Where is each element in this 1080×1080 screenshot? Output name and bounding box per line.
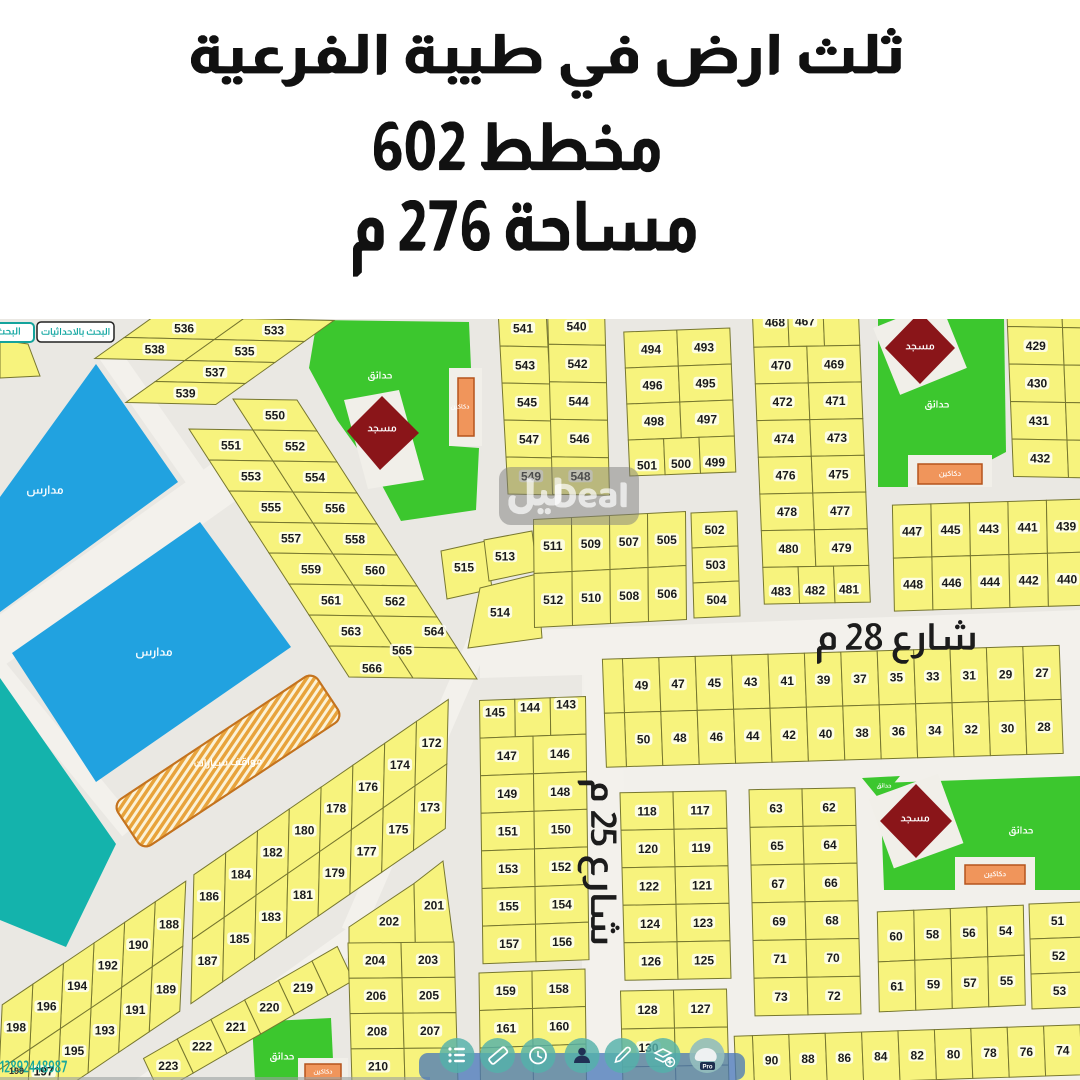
svg-text:493: 493 xyxy=(694,340,714,354)
svg-text:159: 159 xyxy=(496,984,516,998)
svg-text:63: 63 xyxy=(769,801,783,815)
svg-text:61: 61 xyxy=(890,979,904,993)
svg-text:497: 497 xyxy=(697,412,717,426)
svg-text:144: 144 xyxy=(520,700,540,714)
svg-text:125: 125 xyxy=(694,953,714,967)
svg-text:50: 50 xyxy=(637,732,651,746)
svg-text:439: 439 xyxy=(1056,520,1076,534)
svg-text:191: 191 xyxy=(125,1003,145,1017)
svg-text:147: 147 xyxy=(497,749,517,763)
svg-text:565: 565 xyxy=(392,643,412,657)
svg-text:54: 54 xyxy=(999,924,1013,938)
svg-text:558: 558 xyxy=(345,532,365,546)
svg-text:189: 189 xyxy=(156,982,176,996)
svg-text:192: 192 xyxy=(98,959,118,973)
svg-text:513: 513 xyxy=(495,549,515,563)
svg-text:76: 76 xyxy=(1020,1045,1034,1059)
svg-text:186: 186 xyxy=(199,889,219,903)
svg-text:496: 496 xyxy=(642,378,662,392)
svg-text:483: 483 xyxy=(771,584,791,598)
svg-text:540: 540 xyxy=(566,319,586,333)
svg-text:148: 148 xyxy=(550,785,570,799)
svg-text:220: 220 xyxy=(259,1001,279,1015)
svg-text:38: 38 xyxy=(855,726,869,740)
svg-text:36: 36 xyxy=(892,725,906,739)
svg-text:537: 537 xyxy=(205,365,225,379)
svg-text:179: 179 xyxy=(325,866,345,880)
svg-text:29: 29 xyxy=(999,667,1013,681)
svg-text:155: 155 xyxy=(499,900,519,914)
svg-text:510: 510 xyxy=(581,591,601,605)
svg-text:501: 501 xyxy=(637,458,657,472)
svg-text:57: 57 xyxy=(963,976,977,990)
svg-text:67: 67 xyxy=(771,877,785,891)
svg-text:444: 444 xyxy=(980,575,1000,589)
svg-text:219: 219 xyxy=(293,981,313,995)
svg-text:440: 440 xyxy=(1057,573,1077,587)
svg-text:58: 58 xyxy=(926,928,940,942)
svg-text:30: 30 xyxy=(1001,721,1015,735)
svg-text:207: 207 xyxy=(420,1024,440,1038)
svg-text:445: 445 xyxy=(941,523,961,537)
svg-text:194: 194 xyxy=(67,979,87,993)
svg-text:53: 53 xyxy=(1053,984,1067,998)
svg-text:481: 481 xyxy=(839,582,859,596)
svg-text:154: 154 xyxy=(552,898,572,912)
svg-text:56: 56 xyxy=(962,926,976,940)
svg-text:62: 62 xyxy=(822,800,836,814)
svg-text:535: 535 xyxy=(235,344,255,358)
svg-text:181: 181 xyxy=(293,888,313,902)
svg-text:187: 187 xyxy=(198,954,218,968)
svg-text:221: 221 xyxy=(226,1020,246,1034)
svg-text:509: 509 xyxy=(581,537,601,551)
svg-text:157: 157 xyxy=(499,937,519,951)
svg-text:Pro: Pro xyxy=(702,1065,712,1071)
svg-text:52: 52 xyxy=(1052,949,1066,963)
svg-text:193: 193 xyxy=(95,1024,115,1038)
svg-text:566: 566 xyxy=(362,661,382,675)
svg-text:482: 482 xyxy=(805,583,825,597)
svg-text:554: 554 xyxy=(305,470,325,484)
svg-text:86: 86 xyxy=(838,1051,852,1065)
svg-text:502: 502 xyxy=(704,523,724,537)
svg-text:33: 33 xyxy=(926,670,940,684)
svg-text:88: 88 xyxy=(801,1052,815,1066)
svg-text:512: 512 xyxy=(543,593,563,607)
svg-text:560: 560 xyxy=(365,563,385,577)
svg-text:68: 68 xyxy=(825,914,839,928)
svg-text:539: 539 xyxy=(176,386,196,400)
svg-text:514: 514 xyxy=(490,605,510,619)
svg-text:552: 552 xyxy=(285,439,305,453)
svg-text:195: 195 xyxy=(64,1044,84,1058)
svg-text:39: 39 xyxy=(817,673,831,687)
svg-text:543: 543 xyxy=(515,358,535,372)
svg-text:507: 507 xyxy=(619,535,639,549)
svg-text:431: 431 xyxy=(1029,414,1049,428)
svg-text:198: 198 xyxy=(6,1020,26,1034)
svg-text:42: 42 xyxy=(783,728,797,742)
svg-text:40: 40 xyxy=(819,727,833,741)
svg-text:511: 511 xyxy=(543,539,563,553)
svg-text:480: 480 xyxy=(778,542,798,556)
svg-text:47: 47 xyxy=(671,677,685,691)
svg-text:152: 152 xyxy=(551,860,571,874)
svg-text:119: 119 xyxy=(691,841,711,855)
svg-text:46: 46 xyxy=(710,730,724,744)
svg-text:503: 503 xyxy=(705,558,725,572)
svg-text:561: 561 xyxy=(321,593,341,607)
svg-text:550: 550 xyxy=(265,408,285,422)
svg-text:547: 547 xyxy=(519,432,539,446)
svg-text:551: 551 xyxy=(221,438,241,452)
svg-text:188: 188 xyxy=(159,917,179,931)
svg-text:206: 206 xyxy=(366,989,386,1003)
svg-text:145: 145 xyxy=(485,705,505,719)
svg-text:500: 500 xyxy=(671,457,691,471)
svg-text:430: 430 xyxy=(1027,377,1047,391)
svg-text:146: 146 xyxy=(550,747,570,761)
svg-text:470: 470 xyxy=(771,358,791,372)
svg-text:505: 505 xyxy=(657,533,677,547)
svg-text:448: 448 xyxy=(903,577,923,591)
svg-text:222: 222 xyxy=(192,1040,212,1054)
svg-text:37: 37 xyxy=(853,672,867,686)
svg-text:477: 477 xyxy=(830,504,850,518)
svg-text:479: 479 xyxy=(831,541,851,555)
svg-text:123: 123 xyxy=(693,916,713,930)
svg-text:557: 557 xyxy=(281,531,301,545)
svg-text:555: 555 xyxy=(261,500,281,514)
svg-text:190: 190 xyxy=(128,938,148,952)
svg-text:202: 202 xyxy=(379,914,399,928)
svg-text:553: 553 xyxy=(241,469,261,483)
svg-text:182: 182 xyxy=(263,846,283,860)
svg-text:223: 223 xyxy=(158,1059,178,1073)
svg-text:174: 174 xyxy=(390,758,410,772)
svg-text:205: 205 xyxy=(419,989,439,1003)
svg-text:69: 69 xyxy=(772,915,786,929)
svg-text:90: 90 xyxy=(765,1053,779,1067)
svg-text:203: 203 xyxy=(418,953,438,967)
svg-text:126: 126 xyxy=(641,954,661,968)
svg-text:48: 48 xyxy=(673,731,687,745)
svg-text:149: 149 xyxy=(497,787,517,801)
svg-text:429: 429 xyxy=(1026,339,1046,353)
svg-text:60: 60 xyxy=(889,929,903,943)
svg-text:153: 153 xyxy=(498,862,518,876)
svg-text:65: 65 xyxy=(770,839,784,853)
svg-text:72: 72 xyxy=(827,989,841,1003)
svg-text:49: 49 xyxy=(635,678,649,692)
svg-text:78: 78 xyxy=(983,1046,997,1060)
svg-text:185: 185 xyxy=(229,932,249,946)
svg-text:51: 51 xyxy=(1051,914,1065,928)
svg-text:563: 563 xyxy=(341,624,361,638)
svg-text:442: 442 xyxy=(1019,574,1039,588)
svg-text:82: 82 xyxy=(911,1049,925,1063)
svg-text:545: 545 xyxy=(517,395,537,409)
svg-text:55: 55 xyxy=(1000,974,1014,988)
svg-text:117: 117 xyxy=(690,803,710,817)
svg-text:183: 183 xyxy=(261,910,281,924)
svg-text:498: 498 xyxy=(644,414,664,428)
svg-text:180: 180 xyxy=(294,824,314,838)
svg-text:499: 499 xyxy=(705,455,725,469)
svg-text:446: 446 xyxy=(942,576,962,590)
svg-text:45: 45 xyxy=(708,676,722,690)
svg-text:536: 536 xyxy=(174,321,194,335)
svg-text:204: 204 xyxy=(365,954,385,968)
svg-text:184: 184 xyxy=(231,867,251,881)
svg-text:120: 120 xyxy=(638,842,658,856)
svg-text:128: 128 xyxy=(637,1003,657,1017)
svg-text:443: 443 xyxy=(979,522,999,536)
svg-text:158: 158 xyxy=(549,982,569,996)
svg-text:150: 150 xyxy=(551,822,571,836)
svg-text:27: 27 xyxy=(1035,666,1049,680)
svg-text:508: 508 xyxy=(619,589,639,603)
svg-text:177: 177 xyxy=(357,844,377,858)
svg-text:494: 494 xyxy=(641,342,661,356)
svg-text:495: 495 xyxy=(695,376,715,390)
svg-text:28: 28 xyxy=(1037,720,1051,734)
svg-text:210: 210 xyxy=(368,1060,388,1074)
svg-text:541: 541 xyxy=(513,321,533,335)
svg-text:201: 201 xyxy=(424,898,444,912)
svg-text:199: 199 xyxy=(9,1066,24,1076)
svg-text:43: 43 xyxy=(744,675,758,689)
svg-text:506: 506 xyxy=(657,587,677,601)
svg-text:84: 84 xyxy=(874,1050,888,1064)
svg-text:151: 151 xyxy=(498,824,518,838)
svg-text:544: 544 xyxy=(568,394,588,408)
svg-text:176: 176 xyxy=(358,780,378,794)
svg-text:472: 472 xyxy=(772,395,792,409)
svg-text:469: 469 xyxy=(824,357,844,371)
svg-text:34: 34 xyxy=(928,724,942,738)
svg-text:172: 172 xyxy=(422,736,442,750)
svg-text:41: 41 xyxy=(781,674,795,688)
svg-text:64: 64 xyxy=(823,838,837,852)
svg-text:474: 474 xyxy=(774,432,794,446)
svg-text:124: 124 xyxy=(640,917,660,931)
svg-text:66: 66 xyxy=(824,876,838,890)
svg-text:556: 556 xyxy=(325,501,345,515)
svg-text:31: 31 xyxy=(963,668,977,682)
svg-text:121: 121 xyxy=(692,878,712,892)
svg-text:196: 196 xyxy=(37,1000,57,1014)
svg-text:533: 533 xyxy=(264,323,284,337)
svg-text:473: 473 xyxy=(827,431,847,445)
svg-text:546: 546 xyxy=(569,432,589,446)
svg-text:447: 447 xyxy=(902,524,922,538)
svg-text:143: 143 xyxy=(556,697,576,711)
svg-text:80: 80 xyxy=(947,1047,961,1061)
svg-text:156: 156 xyxy=(552,935,572,949)
svg-text:175: 175 xyxy=(388,822,408,836)
svg-text:475: 475 xyxy=(828,467,848,481)
svg-text:441: 441 xyxy=(1018,521,1038,535)
svg-text:559: 559 xyxy=(301,562,321,576)
svg-text:478: 478 xyxy=(777,505,797,519)
svg-text:44: 44 xyxy=(746,729,760,743)
svg-text:71: 71 xyxy=(773,952,787,966)
svg-text:74: 74 xyxy=(1056,1044,1070,1058)
svg-text:515: 515 xyxy=(454,560,474,574)
svg-text:73: 73 xyxy=(774,990,788,1004)
svg-text:538: 538 xyxy=(145,342,165,356)
svg-text:173: 173 xyxy=(420,801,440,815)
svg-text:504: 504 xyxy=(706,593,726,607)
svg-text:542: 542 xyxy=(567,357,587,371)
svg-text:208: 208 xyxy=(367,1024,387,1038)
svg-text:432: 432 xyxy=(1030,452,1050,466)
svg-text:476: 476 xyxy=(775,468,795,482)
svg-text:178: 178 xyxy=(326,802,346,816)
svg-text:127: 127 xyxy=(690,1002,710,1016)
svg-text:59: 59 xyxy=(927,978,941,992)
svg-text:70: 70 xyxy=(826,951,840,965)
svg-text:160: 160 xyxy=(549,1020,569,1034)
svg-text:122: 122 xyxy=(639,879,659,893)
svg-text:562: 562 xyxy=(385,594,405,608)
svg-text:161: 161 xyxy=(496,1022,516,1036)
svg-text:35: 35 xyxy=(890,671,904,685)
svg-text:564: 564 xyxy=(424,624,444,638)
svg-text:118: 118 xyxy=(637,804,657,818)
svg-text:32: 32 xyxy=(965,722,979,736)
svg-text:471: 471 xyxy=(825,394,845,408)
